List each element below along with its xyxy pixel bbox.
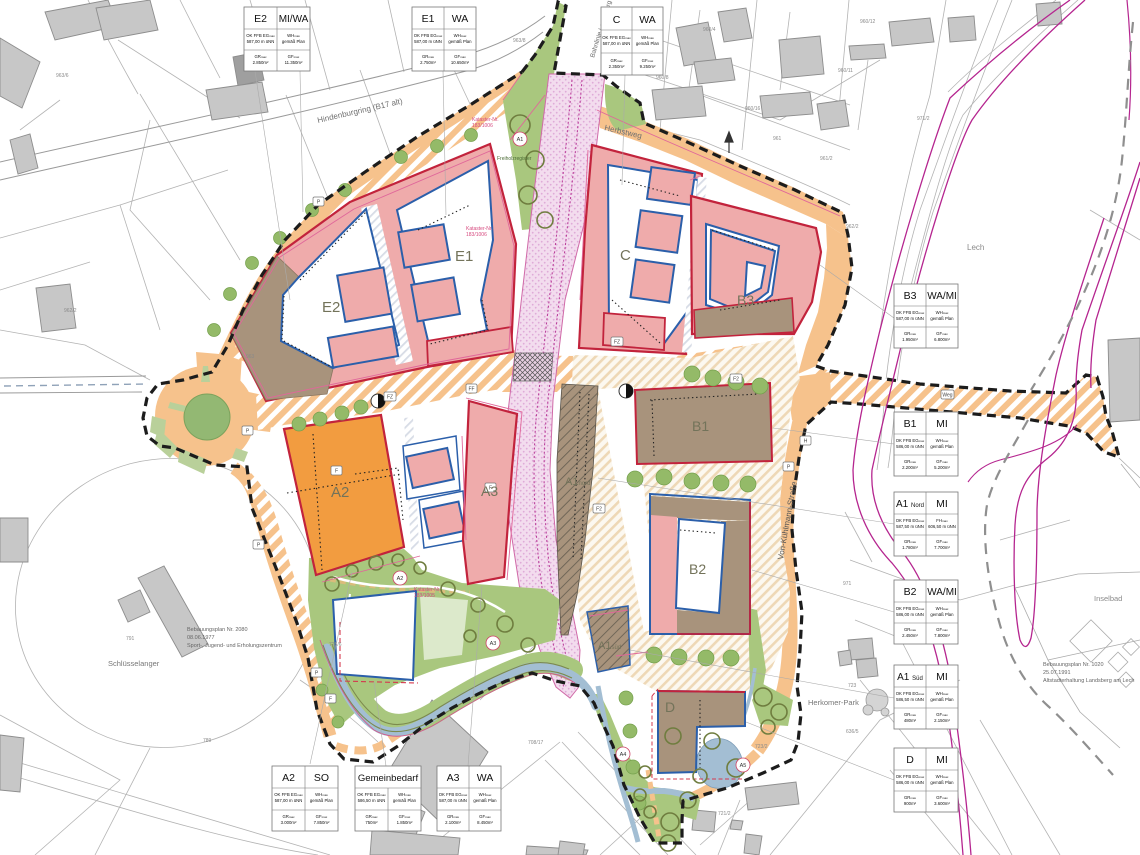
svg-text:gemäß Plan: gemäß Plan [282, 39, 306, 44]
svg-text:10.650m²: 10.650m² [451, 60, 470, 65]
svg-text:GFmax: GFmax [454, 54, 466, 59]
svg-text:721/2: 721/2 [718, 811, 731, 817]
svg-text:OK FFB EGmax: OK FFB EGmax [896, 606, 925, 611]
svg-text:08.06.1977: 08.06.1977 [187, 635, 215, 641]
svg-text:gemäß Plan: gemäß Plan [930, 780, 954, 785]
svg-text:587,00 m üNN: 587,00 m üNN [603, 41, 631, 46]
svg-text:OK FFB EGmax: OK FFB EGmax [439, 792, 468, 797]
svg-text:962/2: 962/2 [64, 308, 77, 314]
svg-text:E2: E2 [254, 13, 267, 25]
svg-text:WHmax: WHmax [936, 438, 949, 443]
svg-text:587,00 m üNN: 587,00 m üNN [247, 39, 275, 44]
svg-text:OK FFB EGmax: OK FFB EGmax [274, 792, 303, 797]
svg-text:gemäß Plan: gemäß Plan [930, 697, 954, 702]
svg-text:5.200m²: 5.200m² [934, 465, 950, 470]
svg-text:Schlüsselanger: Schlüsselanger [108, 659, 160, 668]
svg-text:MI: MI [936, 754, 948, 766]
svg-text:587,00 m üNN: 587,00 m üNN [414, 39, 442, 44]
svg-text:GRmax: GRmax [904, 627, 917, 632]
svg-text:606,50 m üNN: 606,50 m üNN [928, 524, 956, 529]
svg-text:586,50 m üNN: 586,50 m üNN [896, 697, 924, 702]
svg-text:A3: A3 [481, 483, 498, 499]
svg-text:D: D [906, 754, 914, 766]
svg-text:Freiholzregister: Freiholzregister [497, 156, 532, 162]
svg-text:2.200m²: 2.200m² [902, 465, 918, 470]
svg-text:OK FFB EGmax: OK FFB EGmax [602, 35, 631, 40]
svg-text:723: 723 [848, 683, 857, 689]
svg-text:F2: F2 [596, 507, 602, 513]
svg-text:Sport-, Jugend- und Erholungsz: Sport-, Jugend- und Erholungszentrum [187, 643, 282, 649]
svg-text:B3: B3 [904, 290, 917, 302]
svg-text:gemäß Plan: gemäß Plan [393, 798, 417, 803]
svg-text:OK FFB EGmax: OK FFB EGmax [414, 33, 443, 38]
svg-text:B1: B1 [904, 418, 917, 430]
svg-text:WA: WA [452, 13, 469, 25]
svg-text:E1: E1 [455, 248, 473, 265]
svg-text:3.600m²: 3.600m² [934, 801, 950, 806]
svg-text:GRmax: GRmax [904, 459, 917, 464]
svg-text:586,50 m üNN: 586,50 m üNN [358, 798, 386, 803]
svg-text:GFmax: GFmax [936, 459, 948, 464]
svg-text:791: 791 [126, 636, 135, 642]
svg-text:WHmax: WHmax [936, 606, 949, 611]
svg-text:Inselbad: Inselbad [1094, 594, 1122, 603]
svg-text:MI: MI [936, 498, 948, 510]
svg-text:900m²: 900m² [904, 801, 917, 806]
svg-text:11.350m²: 11.350m² [285, 60, 303, 65]
svg-text:WA/MI: WA/MI [927, 291, 957, 302]
svg-text:GFmax: GFmax [936, 712, 948, 717]
svg-text:723/2: 723/2 [755, 744, 768, 750]
svg-text:586,00 m üNN: 586,00 m üNN [896, 780, 924, 785]
svg-text:WHmax: WHmax [454, 33, 467, 38]
svg-text:961/2: 961/2 [820, 156, 833, 162]
svg-text:1.850m²: 1.850m² [397, 820, 413, 825]
svg-text:A2: A2 [282, 772, 295, 784]
svg-text:9.250m²: 9.250m² [640, 64, 656, 69]
svg-text:GRmax: GRmax [365, 814, 378, 819]
svg-text:2.100m²: 2.100m² [445, 820, 461, 825]
svg-text:MI/WA: MI/WA [279, 14, 309, 25]
svg-text:Weg: Weg [942, 393, 952, 399]
svg-text:A2: A2 [397, 576, 404, 582]
svg-text:7.850m²: 7.850m² [314, 820, 330, 825]
svg-text:OK FFB EGmax: OK FFB EGmax [896, 310, 925, 315]
svg-text:E2: E2 [322, 299, 340, 316]
svg-text:F2: F2 [733, 377, 739, 383]
svg-text:GFmax: GFmax [288, 54, 300, 59]
svg-text:183/1005: 183/1005 [414, 593, 435, 599]
svg-text:183/1006: 183/1006 [472, 123, 493, 129]
svg-text:F: F [335, 469, 338, 475]
svg-text:GRmax: GRmax [904, 331, 917, 336]
svg-text:gemäß Plan: gemäß Plan [636, 41, 660, 46]
svg-text:708/17: 708/17 [528, 740, 544, 746]
svg-text:960/4: 960/4 [703, 27, 716, 33]
svg-text:2.350m²: 2.350m² [609, 64, 625, 69]
svg-text:gemäß Plan: gemäß Plan [448, 39, 472, 44]
svg-text:OK FFB EGmax: OK FFB EGmax [896, 691, 925, 696]
svg-text:C: C [613, 14, 621, 26]
svg-text:725/6: 725/6 [329, 642, 342, 648]
svg-text:636/5: 636/5 [846, 729, 859, 735]
svg-text:WHmax: WHmax [398, 792, 411, 797]
svg-text:GFmax: GFmax [316, 814, 328, 819]
svg-text:WA/MI: WA/MI [927, 587, 957, 598]
svg-text:960/11: 960/11 [838, 68, 853, 74]
svg-text:586,00 m üNN: 586,00 m üNN [896, 612, 924, 617]
svg-text:971/2: 971/2 [917, 116, 930, 122]
svg-text:A2: A2 [331, 484, 349, 501]
svg-text:gemäß Plan: gemäß Plan [930, 612, 954, 617]
svg-text:183/1006: 183/1006 [466, 232, 487, 238]
svg-text:B2: B2 [689, 561, 706, 577]
svg-text:GRmax: GRmax [447, 814, 460, 819]
svg-text:960/8: 960/8 [656, 75, 669, 81]
svg-text:2.750m²: 2.750m² [420, 60, 436, 65]
svg-text:8.450m²: 8.450m² [477, 820, 493, 825]
svg-text:WA: WA [639, 14, 656, 26]
svg-text:GRmax: GRmax [422, 54, 435, 59]
svg-text:gemäß Plan: gemäß Plan [930, 444, 954, 449]
svg-text:A5: A5 [740, 763, 747, 769]
svg-text:961: 961 [773, 136, 782, 142]
svg-text:GFmax: GFmax [399, 814, 411, 819]
svg-text:971: 971 [843, 581, 852, 587]
svg-text:960/16: 960/16 [745, 106, 761, 112]
svg-text:A4: A4 [620, 752, 627, 758]
svg-text:750m²: 750m² [365, 820, 378, 825]
svg-text:GRmax: GRmax [904, 795, 917, 800]
svg-text:WHmax: WHmax [641, 35, 654, 40]
svg-text:960/12: 960/12 [860, 19, 876, 25]
svg-text:B1: B1 [692, 418, 709, 434]
svg-text:WHmax: WHmax [479, 792, 492, 797]
svg-text:7.800m²: 7.800m² [934, 633, 950, 638]
svg-text:WHmax: WHmax [936, 310, 949, 315]
svg-text:FZ: FZ [387, 395, 393, 401]
svg-text:FZ: FZ [614, 340, 620, 346]
svg-text:GRmax: GRmax [610, 58, 623, 63]
svg-text:587,00 m üNN: 587,00 m üNN [439, 798, 467, 803]
svg-text:H: H [804, 439, 808, 445]
svg-text:MI: MI [936, 418, 948, 430]
svg-text:7.700m²: 7.700m² [934, 545, 950, 550]
svg-text:OK FFB EGmax: OK FFB EGmax [896, 438, 925, 443]
svg-text:GFmax: GFmax [936, 627, 948, 632]
svg-text:SO: SO [314, 772, 329, 784]
svg-text:WHmax: WHmax [315, 792, 328, 797]
svg-text:B3: B3 [737, 292, 754, 308]
svg-text:WHmax: WHmax [936, 691, 949, 696]
svg-text:WA: WA [477, 772, 494, 784]
svg-text:963: 963 [246, 354, 255, 360]
svg-text:A3: A3 [490, 641, 497, 647]
svg-text:2.150m²: 2.150m² [934, 718, 950, 723]
svg-text:E1: E1 [422, 13, 435, 25]
svg-text:1.780m²: 1.780m² [902, 545, 918, 550]
svg-text:963/8: 963/8 [513, 38, 526, 44]
svg-text:GFmax: GFmax [936, 331, 948, 336]
svg-text:Bebauungsplan Nr. 1020: Bebauungsplan Nr. 1020 [1043, 662, 1104, 668]
svg-text:A1: A1 [517, 137, 524, 143]
svg-text:OK FFB EGmax: OK FFB EGmax [357, 792, 386, 797]
svg-text:FHmax: FHmax [936, 518, 948, 523]
svg-text:Altstadterhaltung Landsberg am: Altstadterhaltung Landsberg am Lech [1043, 678, 1134, 684]
svg-text:6.800m²: 6.800m² [934, 337, 950, 342]
svg-text:OK FFB EGmax: OK FFB EGmax [896, 774, 925, 779]
svg-text:gemäß Plan: gemäß Plan [473, 798, 497, 803]
svg-text:2.450m²: 2.450m² [902, 633, 918, 638]
svg-text:GFmax: GFmax [936, 539, 948, 544]
svg-text:GFmax: GFmax [936, 795, 948, 800]
svg-text:D: D [665, 699, 675, 715]
svg-text:MI: MI [936, 671, 948, 683]
svg-text:C: C [620, 247, 631, 264]
svg-text:962/2: 962/2 [846, 224, 859, 230]
svg-text:GRmax: GRmax [904, 539, 917, 544]
svg-text:25.07.1991: 25.07.1991 [1043, 670, 1071, 676]
svg-text:gemäß Plan: gemäß Plan [930, 316, 954, 321]
svg-text:963/6: 963/6 [56, 73, 69, 79]
svg-text:587,50 m üNN: 587,50 m üNN [896, 524, 924, 529]
svg-text:1.950m²: 1.950m² [902, 337, 918, 342]
svg-text:Bebauungsplan Nr. 2080: Bebauungsplan Nr. 2080 [187, 627, 248, 633]
svg-text:586,00 m üNN: 586,00 m üNN [896, 444, 924, 449]
svg-text:Herkomer-Park: Herkomer-Park [808, 698, 859, 707]
svg-text:GRmax: GRmax [254, 54, 267, 59]
svg-text:Gemeinbedarf: Gemeinbedarf [358, 773, 419, 784]
svg-text:FF: FF [468, 387, 474, 393]
svg-text:2.850m²: 2.850m² [253, 60, 269, 65]
svg-text:587,00 m üNN: 587,00 m üNN [275, 798, 303, 803]
svg-text:WHmax: WHmax [936, 774, 949, 779]
svg-text:GRmax: GRmax [904, 712, 917, 717]
svg-text:F: F [329, 697, 332, 703]
svg-text:OK FFB EGmax: OK FFB EGmax [246, 33, 275, 38]
svg-text:GFmax: GFmax [479, 814, 491, 819]
svg-text:B2: B2 [904, 586, 917, 598]
svg-text:A3: A3 [447, 772, 460, 784]
svg-text:GRmax: GRmax [282, 814, 295, 819]
svg-text:3.000m²: 3.000m² [281, 820, 297, 825]
svg-text:Lech: Lech [967, 243, 984, 252]
svg-text:WHmax: WHmax [287, 33, 300, 38]
svg-text:789: 789 [203, 738, 212, 744]
svg-text:GFmax: GFmax [642, 58, 654, 63]
svg-text:480m²: 480m² [904, 718, 917, 723]
svg-text:OK FFB EGmax: OK FFB EGmax [896, 518, 925, 523]
svg-text:587,00 m üNN: 587,00 m üNN [896, 316, 924, 321]
svg-text:gemäß Plan: gemäß Plan [310, 798, 334, 803]
